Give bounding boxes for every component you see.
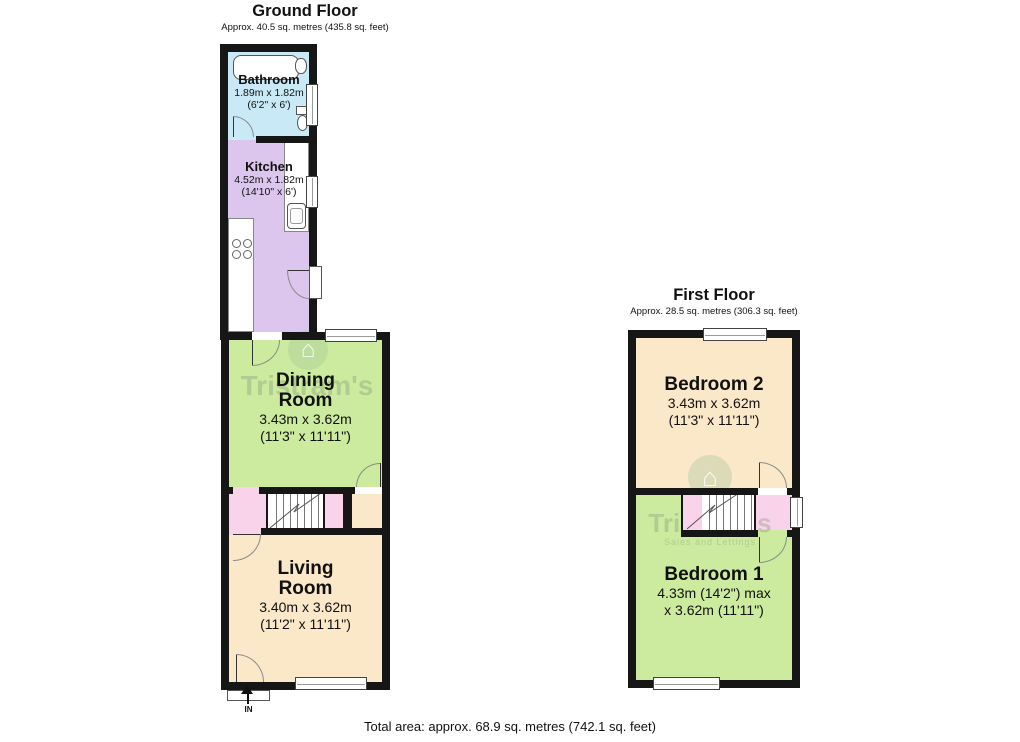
room-dims-line1: 4.33m (14'2") max: [636, 585, 792, 602]
room-dims-imperial: (11'3" x 11'11"): [636, 412, 792, 429]
wall: [628, 330, 636, 688]
room-name: Living: [229, 559, 382, 579]
wall: [261, 528, 382, 535]
hob-burner: [243, 239, 252, 248]
room-name: Bathroom: [229, 73, 309, 87]
wall: [220, 44, 228, 340]
wall: [221, 332, 252, 340]
room-name: Room: [229, 579, 382, 599]
staircase-first: [681, 490, 756, 533]
wall: [787, 488, 792, 495]
hob-burner: [232, 250, 241, 259]
first-floor-title: First Floor: [612, 286, 816, 304]
room-dims-line2: x 3.62m (11'11"): [636, 602, 792, 619]
stair-treads: [270, 492, 321, 530]
bedroom-2-window: [703, 328, 767, 341]
living-room-label: Living Room 3.40m x 3.62m (11'2" x 11'11…: [229, 559, 382, 633]
first-floor-subtitle: Approx. 28.5 sq. metres (306.3 sq. feet): [612, 306, 816, 317]
stair-treads: [703, 492, 752, 531]
ground-floor-title: Ground Floor: [203, 2, 407, 20]
wall-vestibule-divider: [343, 487, 352, 535]
wall: [377, 332, 390, 340]
living-room-window: [295, 677, 367, 690]
room-dims-metric: 3.40m x 3.62m: [229, 599, 382, 616]
room-dims-metric: 3.43m x 3.62m: [636, 395, 792, 412]
room-dims-imperial: (11'2" x 11'11"): [229, 616, 382, 633]
wall: [787, 530, 792, 537]
entrance-in-label: IN: [227, 705, 270, 714]
kitchen-counter-left: [228, 218, 254, 332]
wall: [259, 487, 355, 494]
bedroom-1-window: [653, 677, 720, 690]
wall: [221, 332, 229, 690]
wall: [229, 487, 233, 494]
landing-window: [790, 497, 803, 528]
room-dims-metric: 3.43m x 3.62m: [229, 411, 382, 428]
kitchen-back-door-threshold: [309, 266, 322, 299]
room-name: Kitchen: [228, 160, 310, 174]
kitchen-label: Kitchen 4.52m x 1.82m (14'10" x 6'): [228, 160, 310, 198]
bedroom-2-label: Bedroom 2 3.43m x 3.62m (11'3" x 11'11"): [636, 375, 792, 429]
room-dims-imperial: (11'3" x 11'11"): [229, 428, 382, 445]
room-name: Dining: [229, 371, 382, 391]
dining-room-label: Dining Room 3.43m x 3.62m (11'3" x 11'11…: [229, 371, 382, 445]
bedroom-1-label: Bedroom 1 4.33m (14'2") max x 3.62m (11'…: [636, 565, 792, 619]
stair-landing-strip: [683, 492, 702, 531]
wall: [282, 332, 325, 340]
floorplan-canvas: ⌂ Tristram's ⌂ Tristram's Sales and Lett…: [0, 0, 1020, 742]
wall: [220, 44, 317, 52]
room-dims-imperial: (14'10" x 6'): [228, 186, 310, 198]
room-dims-metric: 1.89m x 1.82m: [229, 87, 309, 99]
ground-floor-subtitle: Approx. 40.5 sq. metres (435.8 sq. feet): [203, 22, 407, 33]
room-name: Room: [229, 391, 382, 411]
entrance-arrow-head: [241, 685, 253, 694]
ground-floor-title-block: Ground Floor Approx. 40.5 sq. metres (43…: [203, 2, 407, 33]
wall: [636, 488, 758, 495]
wall: [382, 332, 390, 690]
wall-bathroom-divider: [256, 136, 309, 143]
hob-burner: [243, 250, 252, 259]
entrance-arrow-stem: [247, 693, 249, 704]
room-name: Bedroom 2: [636, 375, 792, 395]
room-dims-imperial: (6'2" x 6'): [229, 99, 309, 111]
staircase-ground: [266, 490, 325, 532]
hob-burner: [232, 239, 241, 248]
wall: [681, 530, 758, 537]
room-dims-metric: 4.52m x 1.82m: [228, 174, 310, 186]
first-floor-title-block: First Floor Approx. 28.5 sq. metres (306…: [612, 286, 816, 317]
dining-door-leaf: [380, 463, 381, 487]
bathroom-label: Bathroom 1.89m x 1.82m (6'2" x 6'): [229, 73, 309, 111]
dining-room-window: [325, 329, 377, 342]
total-area-text: Total area: approx. 68.9 sq. metres (742…: [0, 719, 1020, 734]
kitchen-sink-bowl: [290, 208, 303, 224]
room-name: Bedroom 1: [636, 565, 792, 585]
house-icon: ⌂: [301, 336, 316, 364]
